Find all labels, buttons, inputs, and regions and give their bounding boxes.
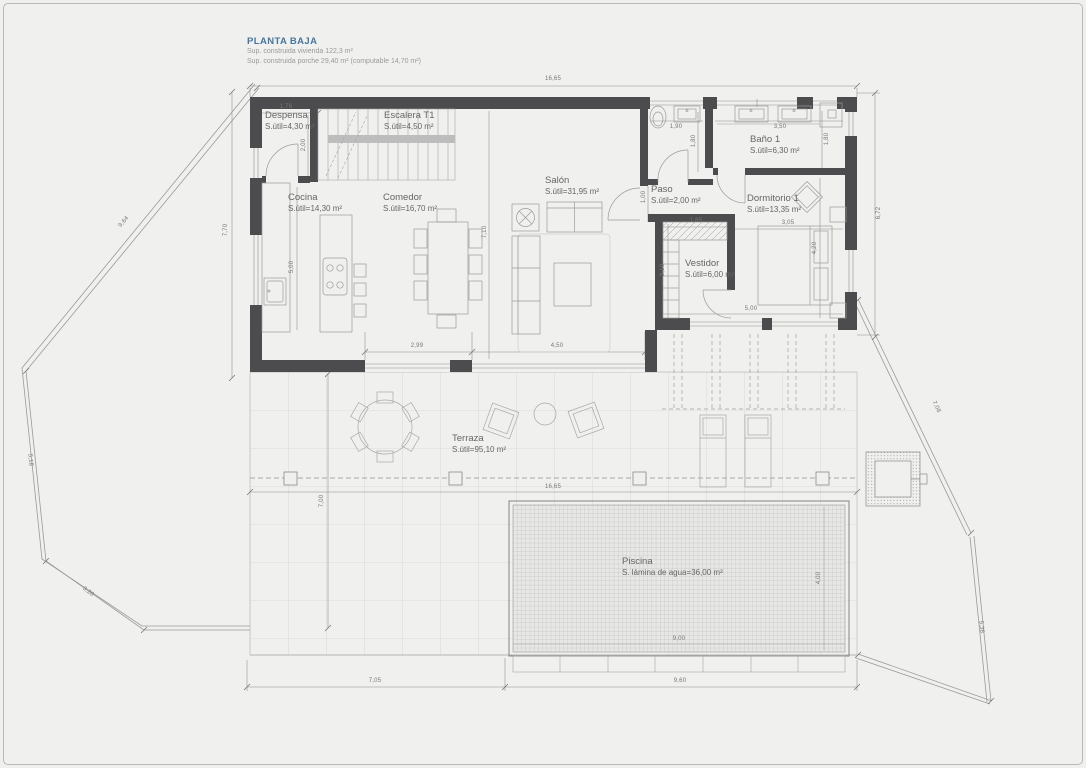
title-block: PLANTA BAJA Sup. construida vivienda 122…: [247, 36, 421, 67]
dining-furniture: [414, 209, 482, 328]
room-label-paso: Paso S.útil=2,00 m²: [651, 184, 701, 207]
dim-bano-depth: 1,80: [824, 133, 830, 145]
dim-bano-width: 3,50: [774, 124, 786, 130]
dim-bottom-left: 7,05: [369, 678, 381, 684]
room-label-piscina: Piscina S. lámina de agua=36,00 m²: [622, 556, 723, 579]
dim-dormitorio-depth: 4,20: [812, 242, 818, 254]
living-furniture: [512, 202, 610, 352]
dim-vestidor-depth: 3,10: [660, 264, 666, 276]
pool: [509, 501, 849, 672]
dim-total-width-mid: 16,65: [545, 484, 561, 490]
dim-bottom-right: 9,60: [674, 678, 686, 684]
built-area-dwelling: Sup. construida vivienda 122,3 m²: [247, 47, 421, 57]
room-label-comedor: Comedor S.útil=16,70 m²: [383, 192, 437, 215]
dim-glass-door-2: 4,50: [551, 343, 563, 349]
spa-box: [866, 452, 927, 506]
room-label-bano1: Baño 1 S.útil=6,30 m²: [750, 134, 800, 157]
room-label-terraza: Terraza S.útil=95,10 m²: [452, 433, 506, 456]
dim-paso-width: 1,00: [641, 191, 647, 203]
room-label-escalera: Escalera T1 S.útil=4,50 m²: [384, 110, 435, 133]
room-label-despensa: Despensa S.útil=4,30 m²: [265, 110, 315, 133]
dim-aseo-depth: 1,80: [691, 135, 697, 147]
room-label-salon: Salón S.útil=31,95 m²: [545, 175, 599, 198]
room-label-dormitorio1: Dormitorio 1 S.útil=13,35 m²: [747, 193, 801, 216]
dim-cocina-depth: 5,00: [289, 261, 295, 273]
dim-right-height: 6,72: [876, 207, 882, 219]
dim-pool-depth: 4,00: [816, 572, 822, 584]
dim-closet-width: 1,85: [690, 218, 702, 224]
dim-terrace-depth: 7,00: [319, 495, 325, 507]
floorplan-sheet: PLANTA BAJA Sup. construida vivienda 122…: [0, 0, 1086, 768]
dim-glass-door-1: 2,99: [411, 343, 423, 349]
dim-despensa-width: 1,76: [280, 104, 292, 110]
dim-pool-width: 9,00: [673, 636, 685, 642]
room-label-vestidor: Vestidor S.útil=6,00 m²: [685, 258, 735, 281]
dim-aseo-width: 1,90: [670, 124, 682, 130]
plan-title: PLANTA BAJA: [247, 36, 421, 47]
dim-boundary-w: 5,18: [26, 453, 33, 466]
dim-dormitorio-width: 3,05: [782, 220, 794, 226]
dim-despensa-depth: 2,00: [301, 139, 307, 151]
dim-total-width-top: 16,65: [545, 76, 561, 82]
dim-rear-opening: 5,00: [745, 306, 757, 312]
built-area-porch: Sup. construida porche 29,40 m² (computa…: [247, 57, 421, 67]
floorplan-drawing: [0, 0, 1086, 768]
dim-interior-depth: 7,10: [482, 226, 488, 238]
dim-boundary-e: 5,38: [977, 620, 984, 633]
dim-left-height: 7,70: [223, 224, 229, 236]
room-label-cocina: Cocina S.útil=14,30 m²: [288, 192, 342, 215]
